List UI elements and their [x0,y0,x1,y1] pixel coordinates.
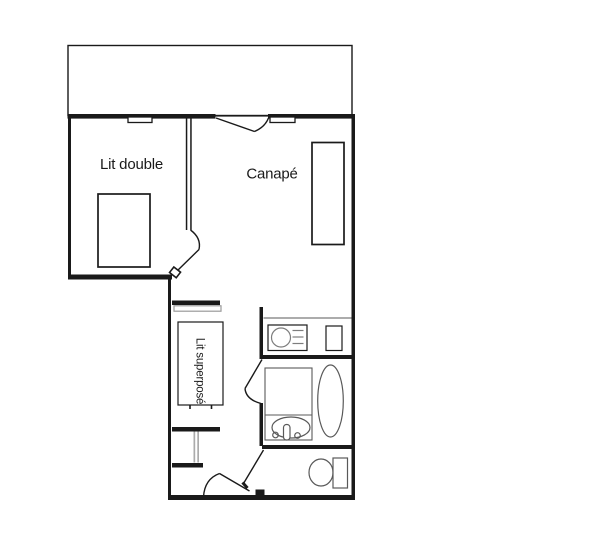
wall-corridor-left [168,279,171,500]
balcony-outline [68,46,352,116]
wall-kitchen-left [260,307,264,357]
wall-kitchen-bathroom [260,355,356,359]
window-bedroom [128,117,152,123]
stove-burner-icon [272,328,291,347]
toilet-tank-icon [333,458,348,488]
wall-bathroom-wc [262,445,355,449]
floor-plan-page: Lit double Canapé Lit superposé [0,0,603,549]
partition-bar-top [172,301,220,306]
shelf [174,306,221,311]
bunk-bed-label: Lit superposé [194,338,206,404]
floor-plan: Lit double Canapé Lit superposé [0,0,603,549]
kitchen-appliance [326,326,342,351]
wall-divider-line-1 [186,118,188,230]
window-living [270,117,295,123]
wall-left [68,114,71,280]
sofa [312,143,344,245]
bathtub-icon [318,365,344,437]
wall-bathroom-left [260,403,264,446]
toilet-bowl-icon [309,459,333,486]
wall-divider-line-2 [190,118,192,230]
door-bathroom-leaf [245,360,262,389]
table-legs [194,432,200,463]
door-balcony-arc [255,118,269,132]
table-leg-left [194,432,196,463]
door-bedroom-leaf [177,250,200,272]
door-balcony-leaf [216,118,255,132]
wall-wc-stub [256,490,265,501]
door-bedroom-arc [191,230,200,250]
partition-bar-lower [172,463,203,468]
door-bathroom-arc [245,389,261,404]
door-corridor-arc [204,474,220,498]
partition-bar-middle [172,427,220,432]
sink-faucet-icon [284,425,291,441]
door-wc-leaf [244,450,264,484]
wall-bedroom-bottom [68,275,172,280]
stove-grill-icon [293,331,304,344]
door-threshold [215,115,269,116]
wall-right [352,114,356,500]
double-bed [98,194,150,267]
table-leg-right [197,432,199,463]
bedroom-label: Lit double [100,156,163,173]
living-room-label: Canapé [246,166,297,183]
kitchen-unit [268,325,307,351]
